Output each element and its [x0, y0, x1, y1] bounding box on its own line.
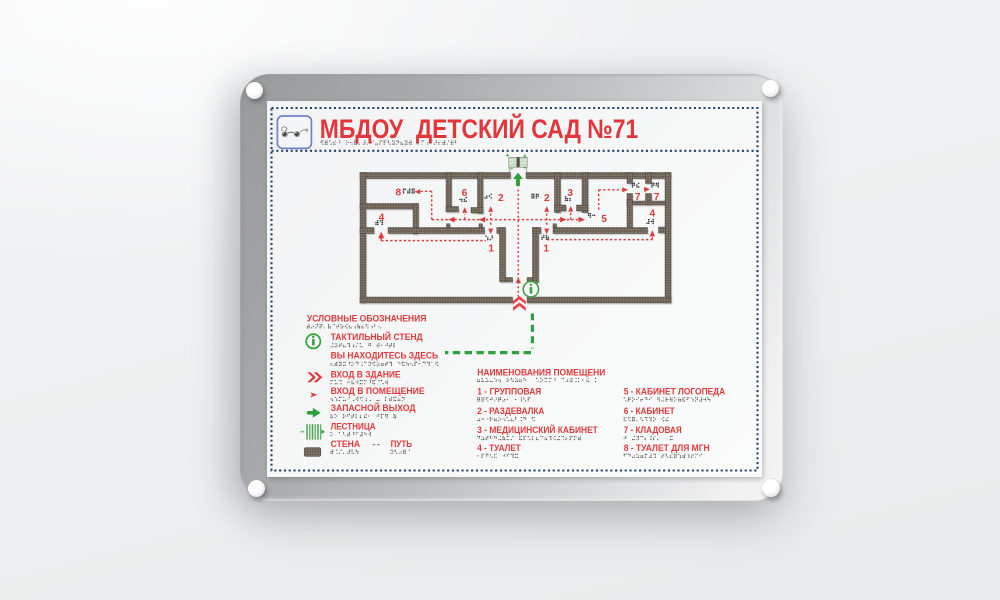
svg-text:1: 1 — [543, 244, 549, 255]
svg-text:2: 2 — [544, 193, 550, 204]
svg-text:4: 4 — [379, 212, 385, 223]
svg-text:ВХОД В ЗДАНИЕ: ВХОД В ЗДАНИЕ — [331, 369, 401, 379]
svg-text:1: 1 — [488, 244, 494, 255]
svg-text:ВХОД В ПОМЕЩЕНИЕ: ВХОД В ПОМЕЩЕНИЕ — [331, 386, 425, 396]
svg-text:2: 2 — [498, 193, 504, 204]
svg-text:УСЛОВНЫЕ ОБОЗНАЧЕНИЯ: УСЛОВНЫЕ ОБОЗНАЧЕНИЯ — [307, 314, 427, 325]
svg-text:7: 7 — [635, 192, 641, 203]
svg-text:СТЕНА: СТЕНА — [331, 439, 361, 449]
svg-text:6: 6 — [462, 188, 468, 199]
svg-text:8 - ТУАЛЕТ ДЛЯ МГН: 8 - ТУАЛЕТ ДЛЯ МГН — [624, 443, 710, 453]
svg-text:ЛЕСТНИЦА: ЛЕСТНИЦА — [331, 422, 376, 432]
svg-text:7: 7 — [654, 192, 660, 203]
svg-text:НАИМЕНОВАНИЯ ПОМЕЩЕНИ: НАИМЕНОВАНИЯ ПОМЕЩЕНИ — [477, 368, 605, 379]
svg-text:ТАКТИЛЬНЫЙ СТЕНД: ТАКТИЛЬНЫЙ СТЕНД — [331, 331, 424, 342]
svg-text:ПУТЬ: ПУТЬ — [391, 439, 413, 449]
svg-text:6 - КАБИНЕТ: 6 - КАБИНЕТ — [624, 406, 675, 416]
svg-text:МБДОУ ДЕТСКИЙ САД №71: МБДОУ ДЕТСКИЙ САД №71 — [320, 113, 639, 144]
svg-text:5 - КАБИНЕТ ЛОГОПЕДА: 5 - КАБИНЕТ ЛОГОПЕДА — [624, 387, 726, 397]
svg-text:ВЫ НАХОДИТЕСЬ ЗДЕСЬ: ВЫ НАХОДИТЕСЬ ЗДЕСЬ — [331, 351, 439, 361]
svg-text:3: 3 — [567, 188, 573, 199]
svg-text:4: 4 — [649, 208, 655, 219]
svg-text:8: 8 — [395, 187, 401, 198]
svg-text:ЗАПАСНОЙ ВЫХОД: ЗАПАСНОЙ ВЫХОД — [331, 402, 417, 413]
svg-text:1 - ГРУППОВАЯ: 1 - ГРУППОВАЯ — [477, 387, 541, 397]
svg-text:7 - КЛАДОВАЯ: 7 - КЛАДОВАЯ — [624, 425, 682, 435]
svg-text:4 - ТУАЛЕТ: 4 - ТУАЛЕТ — [477, 443, 521, 453]
svg-text:3 - МЕДИЦИНСКИЙ КАБИНЕТ: 3 - МЕДИЦИНСКИЙ КАБИНЕТ — [477, 424, 598, 435]
svg-text:5: 5 — [601, 214, 607, 225]
svg-text:2 - РАЗДЕВАЛКА: 2 - РАЗДЕВАЛКА — [477, 406, 544, 416]
